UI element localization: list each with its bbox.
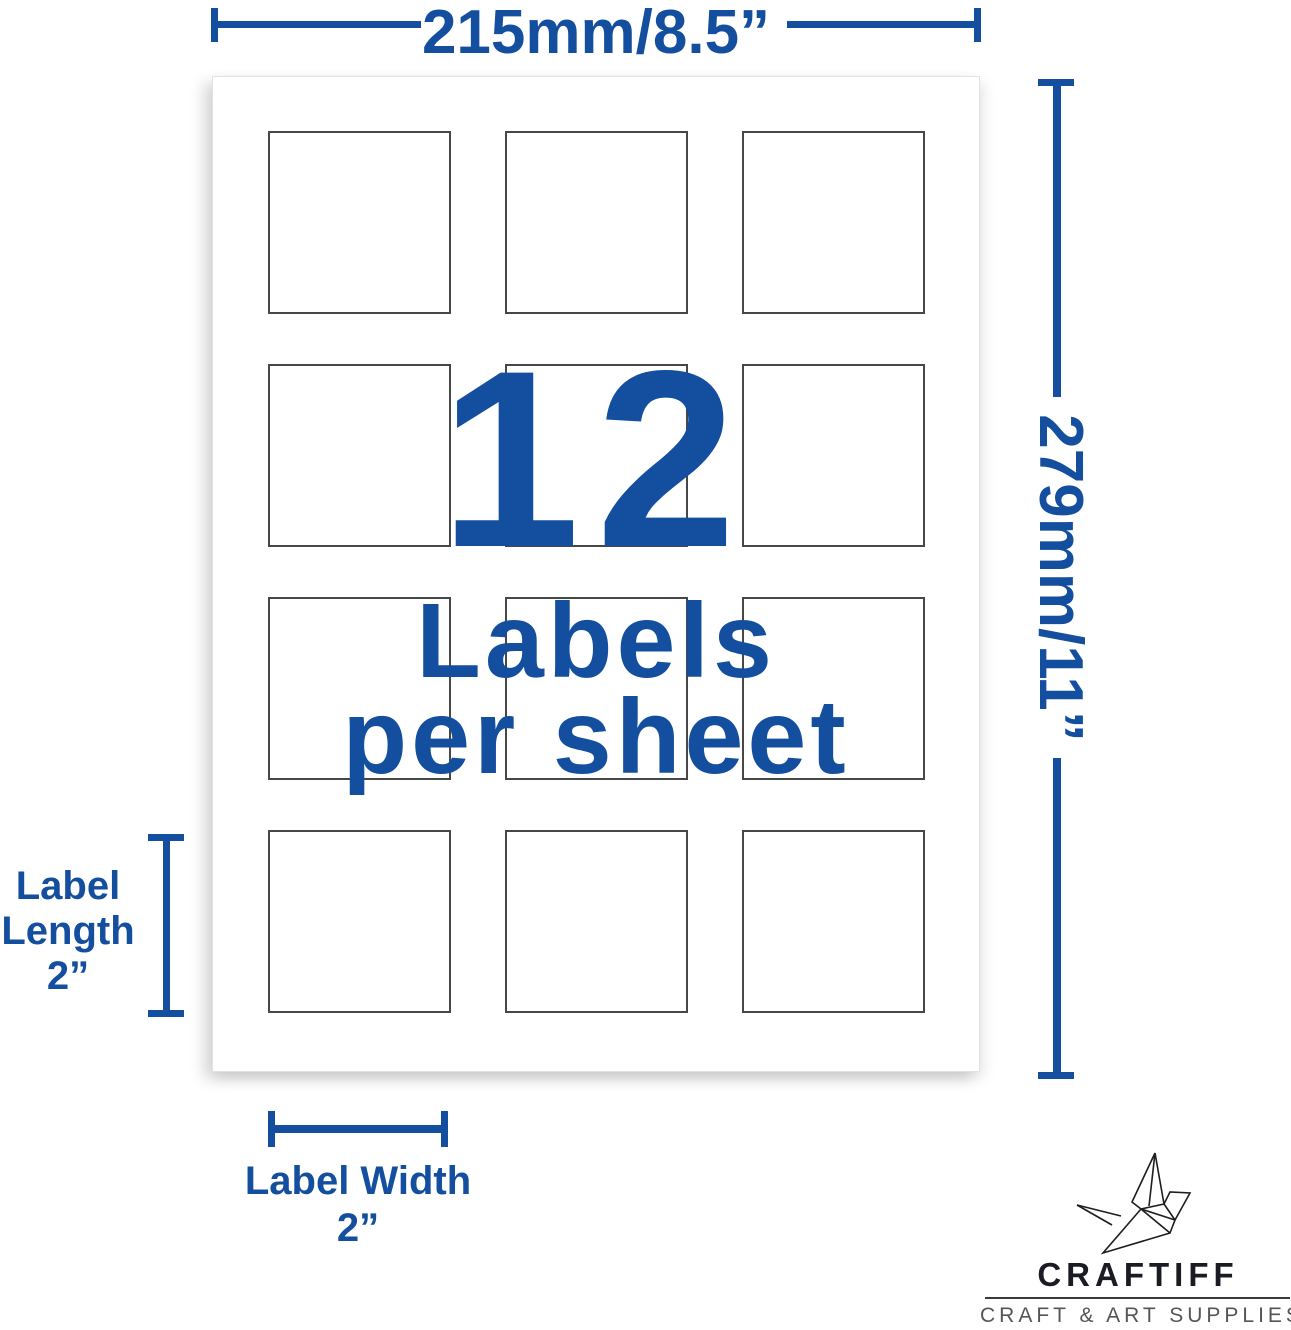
label-cell [268, 830, 451, 1013]
dimension-line [163, 841, 170, 1010]
label-length-line1: Label [0, 864, 136, 909]
label-cell [742, 131, 925, 314]
sheet-width-label: 215mm/8.5” [211, 2, 981, 64]
logo-divider [985, 1297, 1290, 1299]
dimension-cap-top [1038, 79, 1074, 86]
dimension-cap-top [148, 834, 184, 841]
dimension-line-upper [1053, 86, 1061, 397]
sheet-height-label: 279mm/11” [1029, 414, 1091, 741]
origami-crane-icon [1060, 1140, 1220, 1265]
dimension-line [275, 1125, 441, 1133]
label-length-line2: Length [0, 909, 136, 954]
labels-count: 12 [212, 334, 980, 586]
label-length-line3: 2” [0, 954, 136, 999]
dimension-line-right [787, 21, 974, 28]
dimension-cap-left [268, 1111, 275, 1147]
dimension-line-lower [1053, 758, 1061, 1072]
label-width-text: Label Width 2” [238, 1158, 478, 1252]
dimension-cap-bottom [1038, 1072, 1074, 1079]
label-cell [505, 830, 688, 1013]
labels-caption-line2: per sheet [212, 684, 980, 790]
label-cell [742, 830, 925, 1013]
label-width-line2: 2” [238, 1205, 478, 1252]
product-infographic: 215mm/8.5” 12 Labels per sheet 279mm/11”… [0, 0, 1291, 1330]
dimension-cap-right [974, 8, 981, 42]
dimension-cap-right [441, 1111, 448, 1147]
brand-tagline: CRAFT & ART SUPPLIES [980, 1303, 1291, 1329]
brand-name: CRAFTIFF [1000, 1256, 1276, 1294]
label-width-line1: Label Width [238, 1158, 478, 1205]
label-cell [268, 131, 451, 314]
label-cell [505, 131, 688, 314]
label-length-text: Label Length 2” [0, 864, 136, 999]
dimension-cap-bottom [148, 1010, 184, 1017]
